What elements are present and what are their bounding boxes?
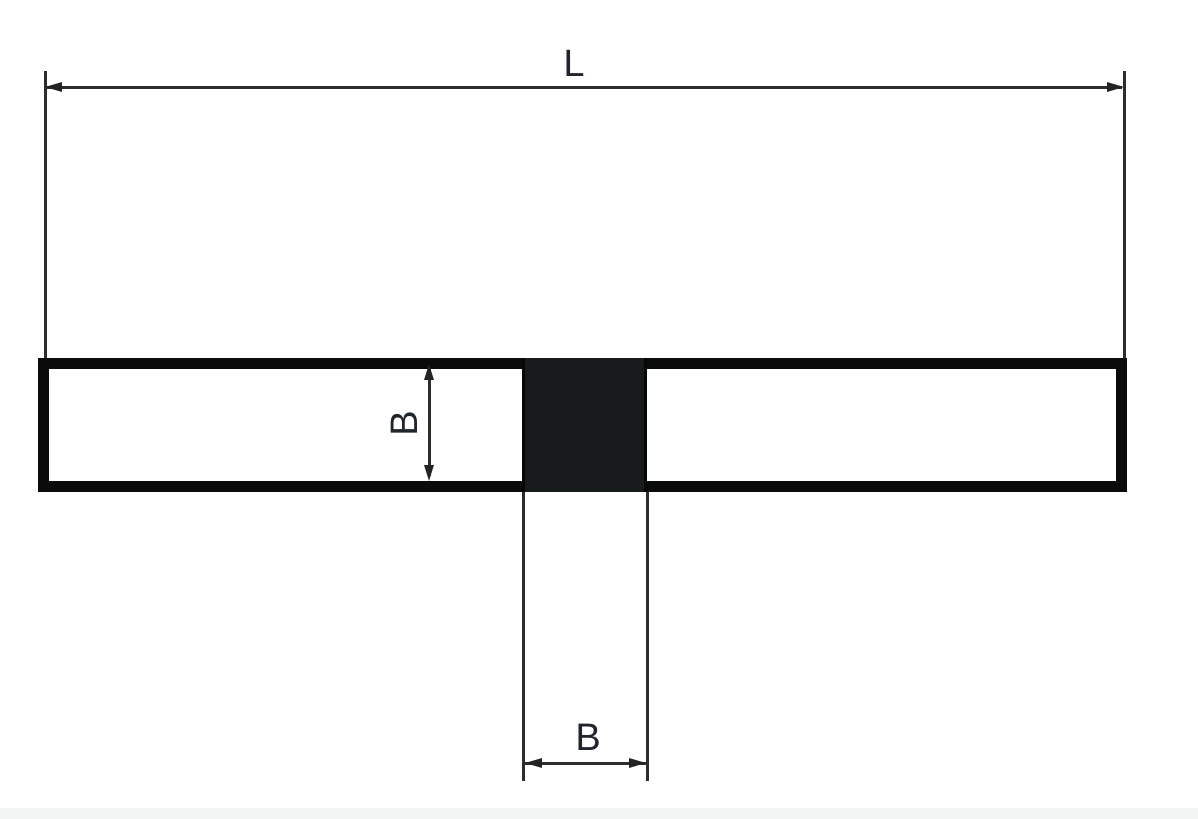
length-label: L [554, 45, 594, 83]
square-section-fill [522, 358, 647, 492]
length-extension-line-left [44, 71, 47, 360]
width-extension-line-right [646, 492, 649, 781]
length-dimension-line [46, 86, 1122, 89]
width-extension-line-left [522, 492, 525, 781]
arrowhead-left-icon [525, 758, 542, 768]
arrowhead-right-icon [629, 758, 646, 768]
bottom-edge-band [0, 808, 1198, 819]
section-width-label: B [568, 719, 608, 757]
dimension-drawing-canvas: L B B [0, 0, 1198, 819]
arrowhead-right-icon [1107, 82, 1124, 92]
arrowhead-down-icon [424, 465, 434, 481]
arrowhead-up-icon [424, 364, 434, 380]
section-height-label: B [383, 401, 427, 445]
height-dimension-line [428, 368, 431, 476]
length-extension-line-right [1123, 71, 1126, 360]
width-dimension-line [525, 762, 646, 765]
arrowhead-left-icon [45, 82, 62, 92]
